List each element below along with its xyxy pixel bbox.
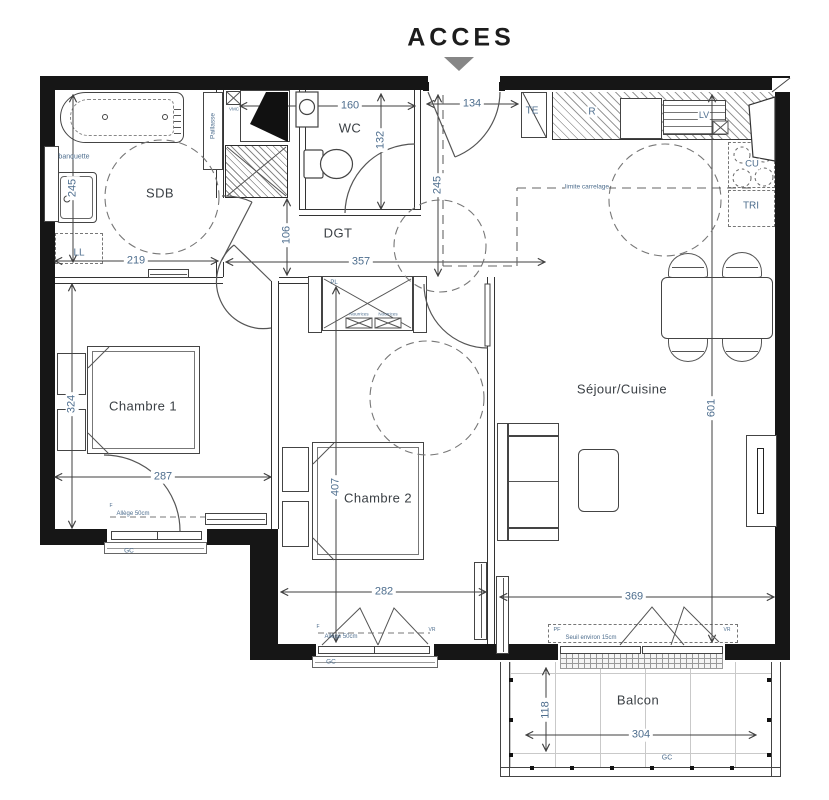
- dim-entry-width: 134: [460, 98, 484, 111]
- ann-r: R: [586, 107, 597, 118]
- chair-2: [722, 252, 762, 278]
- ann-vr-sejour: VR: [724, 627, 731, 633]
- vmc-box: [226, 91, 241, 105]
- dim-dgt-width: 106: [281, 223, 294, 247]
- ann-lv: LV: [698, 110, 710, 120]
- ann-gc-balcon: GC: [662, 755, 673, 762]
- room-label-balcon: Balcon: [617, 693, 659, 708]
- acces-title: ACCES: [407, 24, 515, 53]
- dining-table: [661, 277, 773, 339]
- bathtub-inner: [70, 99, 174, 136]
- room-label-dgt: DGT: [324, 226, 353, 241]
- wall-top-right: [500, 76, 790, 90]
- room-label-chambre1: Chambre 1: [109, 399, 177, 414]
- ann-seuil: Seuil environ 15cm: [565, 635, 616, 641]
- dim-balcon-width: 304: [629, 729, 653, 742]
- sofa-arm-top: [508, 423, 559, 436]
- wall-dgt-bottom-1: [55, 277, 223, 284]
- dim-balcon-depth: 118: [540, 698, 553, 722]
- dim-dgt-length: 357: [349, 256, 373, 269]
- dim-sdb-depth: 245: [67, 176, 80, 200]
- ann-pl: PL: [330, 280, 337, 286]
- sofa-seat: [508, 436, 559, 528]
- room-label-chambre2: Chambre 2: [344, 491, 412, 506]
- dim-c1-depth: 324: [66, 392, 79, 416]
- window-c2-frame: [318, 646, 430, 654]
- dim-c2-depth: 407: [330, 475, 343, 499]
- balcony-rail-right: [771, 662, 781, 777]
- balcony-rail-posts: [509, 678, 513, 682]
- balcony-door-panel-1: [560, 646, 641, 654]
- nightstand-2b: [282, 501, 309, 547]
- closet-post-right: [413, 276, 427, 333]
- dim-sdb-width: 219: [124, 255, 148, 268]
- dim-wc-width: 160: [338, 100, 362, 113]
- balcony-rail-bottom: [500, 767, 781, 777]
- tv: [757, 448, 764, 514]
- ann-ll: LL: [73, 248, 84, 259]
- ann-allege-c2: Allège 50cm: [324, 634, 357, 640]
- wall-sdb-right-lower: [216, 262, 224, 277]
- ann-nourrices-2: Nourrices: [378, 312, 397, 317]
- wall-wc-bottom: [299, 209, 421, 216]
- wall-bottom-3: [723, 644, 790, 660]
- kitchen-sink: [620, 98, 662, 139]
- acces-arrow-icon: [444, 57, 474, 71]
- ann-banquette: banquette: [58, 154, 89, 161]
- ann-cu: CU: [744, 159, 760, 170]
- wall-c2-sejour: [487, 277, 495, 644]
- room-label-sejour: Séjour/Cuisine: [577, 382, 667, 397]
- wall-step: [250, 529, 278, 660]
- ann-f-c2: F: [316, 624, 319, 630]
- ann-allege-c1: Allège 50cm: [116, 511, 149, 517]
- nightstand-1a: [57, 353, 86, 395]
- wall-bottom-1: [276, 644, 316, 660]
- dim-c1-width: 287: [151, 471, 175, 484]
- dim-sejour-width: 369: [622, 591, 646, 604]
- dim-wc-depth: 132: [375, 128, 388, 152]
- dim-c2-width: 282: [372, 586, 396, 599]
- wall-wc-left: [299, 90, 306, 211]
- ann-vmc: VMC: [229, 107, 239, 112]
- ann-gc-c1: GC: [124, 548, 134, 555]
- ann-f-c1: F: [109, 503, 112, 509]
- ann-tri: TRI: [743, 201, 759, 212]
- radiator-c2: [474, 562, 487, 640]
- wall-right: [775, 76, 790, 660]
- coffee-table: [578, 449, 619, 512]
- ann-paillasse: Paillasse: [210, 113, 217, 139]
- closet-post-left: [308, 276, 322, 333]
- ann-gc-c2: GC: [326, 659, 336, 666]
- ann-vr-c2: VR: [429, 627, 436, 633]
- dim-sejour-depth: 601: [706, 396, 719, 420]
- ann-limite-carrelage: limite carrelage: [565, 184, 609, 191]
- chair-1: [668, 253, 708, 278]
- sofa-arm-bottom: [508, 528, 559, 541]
- shaft-hatched: [225, 145, 288, 198]
- sofa-seat-split: [509, 481, 558, 482]
- radiator-dgt: [148, 269, 189, 278]
- room-label-wc: WC: [339, 121, 361, 136]
- wall-top-left: [40, 76, 428, 90]
- dim-entry-depth: 245: [432, 173, 445, 197]
- room-label-sdb: SDB: [146, 186, 174, 201]
- balcony-door-panel-2: [642, 646, 723, 654]
- wall-wc-right: [414, 90, 421, 211]
- floor-plan: ACCES: [0, 0, 829, 800]
- wall-c1-c2-divider: [271, 281, 279, 529]
- entry-jambs: [423, 82, 505, 91]
- window-c1-frame: [111, 531, 202, 540]
- sofa-back: [497, 423, 508, 541]
- corner-detail: [772, 78, 790, 92]
- balcony-floor-line-1: [510, 673, 771, 674]
- threshold-tiles: [560, 654, 723, 669]
- radiator-sejour: [496, 576, 509, 654]
- ann-nourrices-1: Nourrices: [349, 312, 368, 317]
- ann-te: TE: [526, 106, 539, 117]
- duct-box: [240, 90, 290, 142]
- wall-dgt-bottom-2: [279, 277, 311, 284]
- kitchen-drainer: [663, 100, 726, 135]
- chair-4: [722, 337, 762, 362]
- nightstand-2a: [282, 447, 309, 492]
- ann-pf: PF: [553, 627, 560, 633]
- chair-3: [668, 337, 708, 362]
- window-c1-sill: [104, 542, 207, 554]
- radiator-c1: [205, 513, 267, 525]
- bathtub-ticks: [174, 107, 181, 134]
- wall-c1-bottom-left: [40, 529, 107, 545]
- banquette-bench: [44, 146, 59, 222]
- balcony-floor-line-2: [510, 753, 771, 754]
